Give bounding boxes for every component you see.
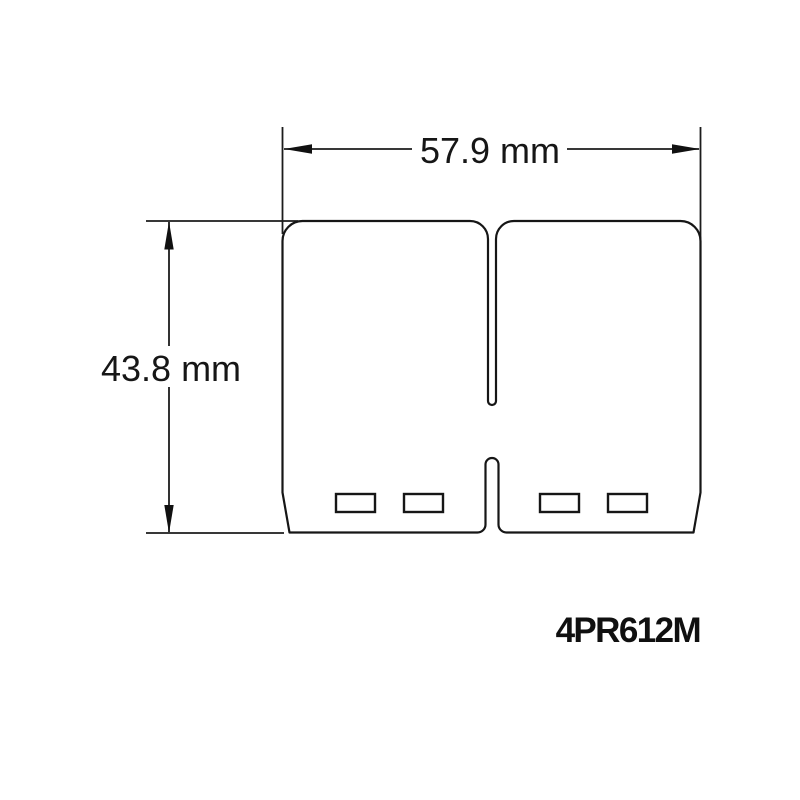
svg-text:4PR612M: 4PR612M	[556, 611, 700, 650]
svg-text:57.9 mm: 57.9 mm	[420, 130, 560, 171]
svg-text:43.8 mm: 43.8 mm	[101, 348, 241, 389]
